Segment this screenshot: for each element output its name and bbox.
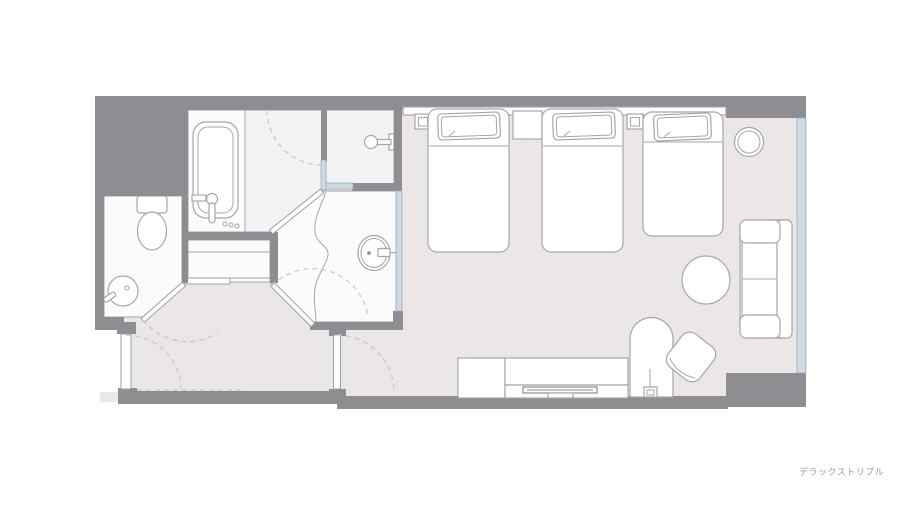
wall-block-top-right [726,96,806,118]
wall-shower-bottom [352,183,401,191]
pillow [553,112,616,140]
wall-bath-left [182,110,188,283]
tv-cabinet [458,358,505,398]
wall-left [95,188,104,330]
vanity-glass-wall [396,191,402,311]
exterior-notch [88,330,121,392]
entrance-door [121,334,131,389]
pillow [653,113,711,141]
wall-closet-right [270,233,278,283]
tv-board [505,358,628,385]
bed-2 [542,109,623,252]
nightstand [513,111,542,139]
closet [188,240,270,282]
bedside-lamp-right [627,114,643,129]
bed-1 [428,109,509,252]
wall-vanity-bottom [310,322,403,330]
entrance-post-top [117,322,136,334]
toilet [137,196,167,250]
wall-bottom-entry [120,391,346,404]
sofa-armrest-top [740,220,780,243]
window [797,118,806,373]
plan-caption: デラックストリプル [799,465,884,478]
floor-plan-page: デラックストリプル [0,0,900,506]
wall-block-bottom-right [726,373,806,407]
wall-shower-right [394,96,402,191]
tv-stand [548,393,573,398]
tv-console [458,358,628,398]
wall-toilet-top [97,188,188,196]
floor-plan [0,0,900,506]
round-stool [735,128,764,157]
bed-3 [643,112,723,236]
shower-room [326,110,394,185]
wall-under-tub [185,232,278,240]
wall-shower-left [321,108,327,162]
entrance-post-bottom [118,388,137,404]
round-table [682,256,730,304]
closet-sliding-door [184,278,230,284]
wall-block-top-left [95,96,185,193]
shower-glass-bottom [326,183,353,189]
pillow [438,112,501,140]
bedroom-door [334,335,341,389]
sofa-armrest-bottom [740,315,780,338]
bathtub [192,122,239,228]
bedroom-door-post-bottom [329,389,346,404]
sofa [740,220,792,338]
